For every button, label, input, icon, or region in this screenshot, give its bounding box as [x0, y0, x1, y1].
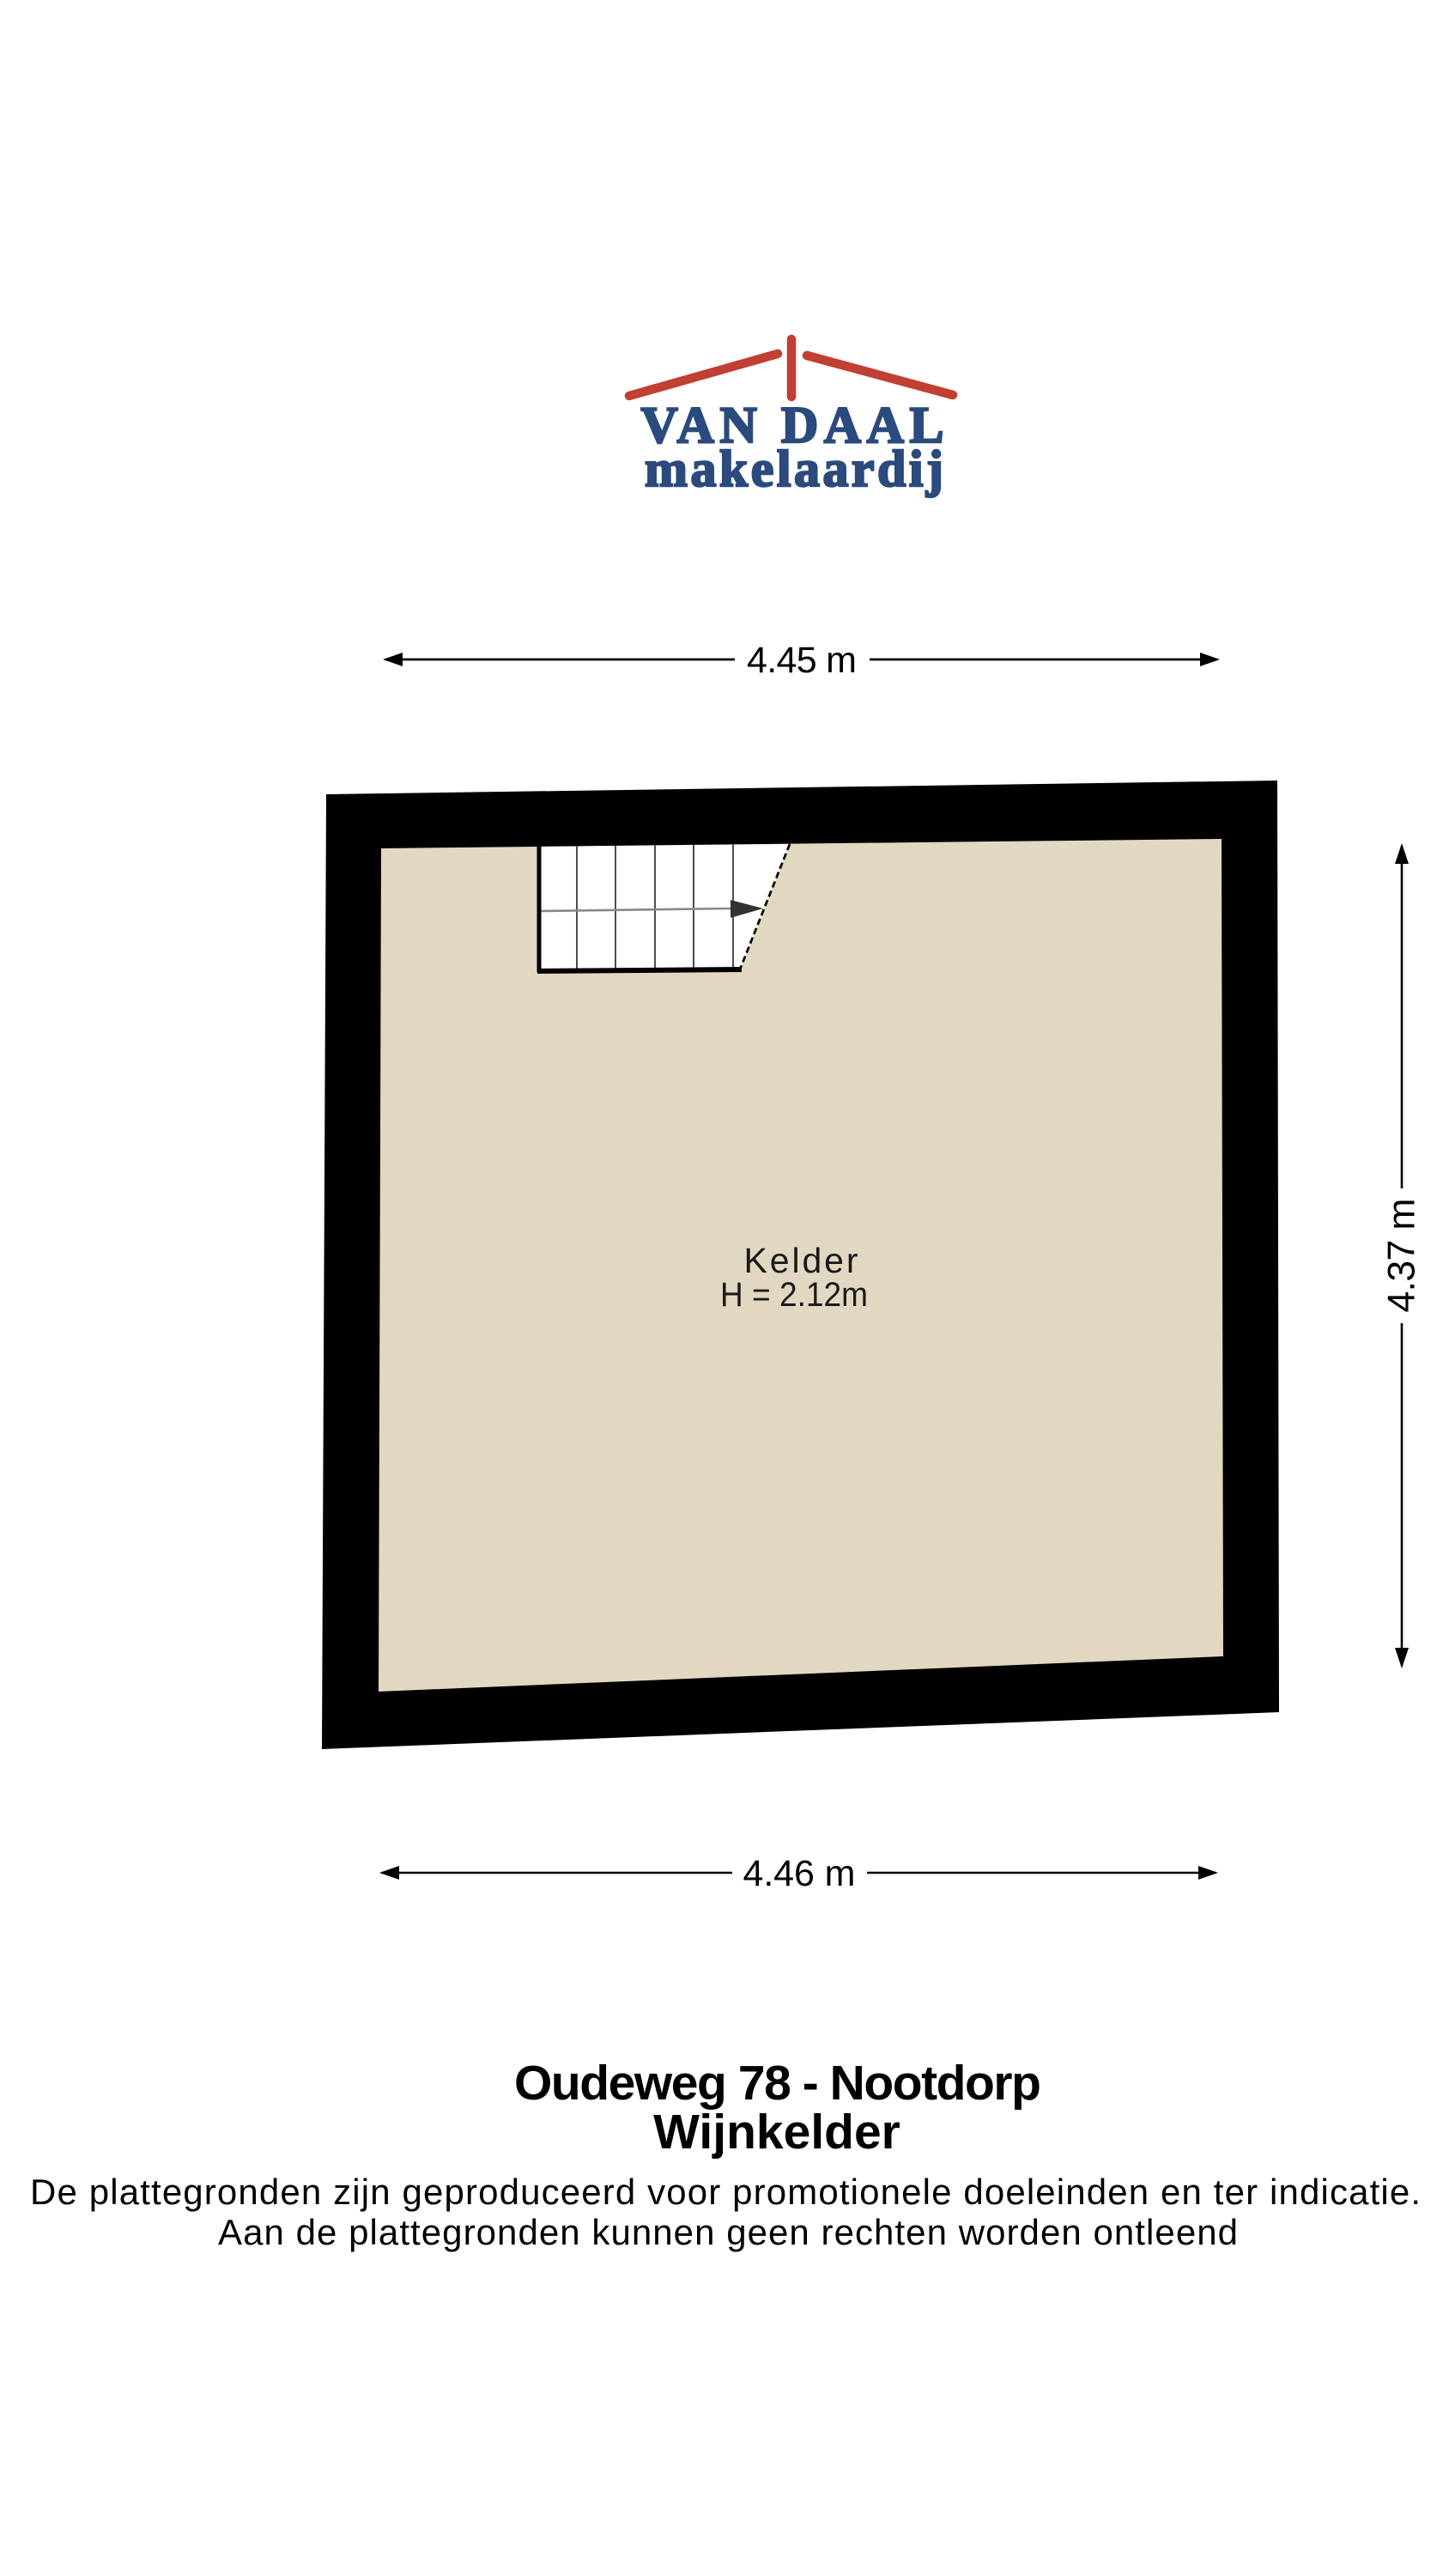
- svg-text:Oudeweg 78 - Nootdorp: Oudeweg 78 - Nootdorp: [514, 2056, 1041, 2111]
- svg-text:De plattegronden zijn geproduc: De plattegronden zijn geproduceerd voor …: [30, 2172, 1421, 2212]
- svg-text:4.46 m: 4.46 m: [743, 1853, 856, 1894]
- svg-text:Aan de plattegronden kunnen ge: Aan de plattegronden kunnen geen rechten…: [218, 2212, 1238, 2252]
- svg-text:4.45 m: 4.45 m: [747, 640, 857, 681]
- svg-text:Wijnkelder: Wijnkelder: [653, 2105, 900, 2160]
- svg-text:H = 2.12m: H = 2.12m: [720, 1276, 868, 1314]
- svg-text:4.37 m: 4.37 m: [1381, 1199, 1423, 1313]
